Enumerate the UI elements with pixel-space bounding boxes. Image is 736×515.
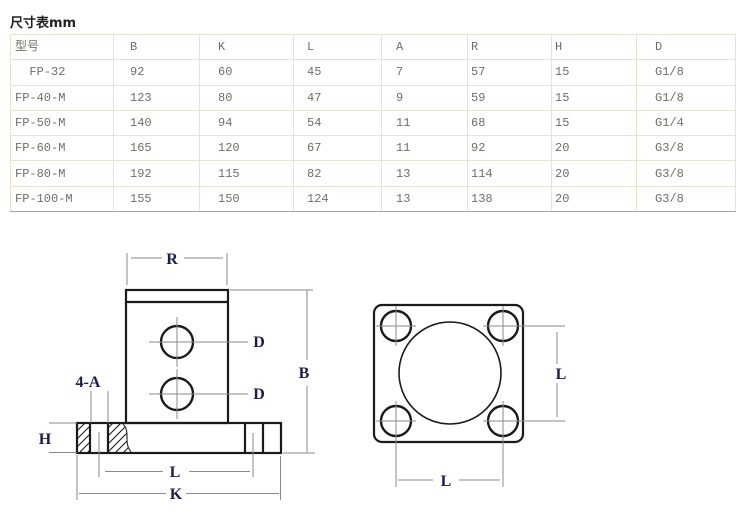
port-hole-bottom: D bbox=[149, 369, 265, 419]
dim-l-vertical: L bbox=[556, 332, 567, 417]
front-view-drawing: R D D bbox=[39, 251, 315, 503]
technical-drawings: R D D bbox=[0, 0, 736, 515]
top-view-drawing: L L bbox=[374, 305, 566, 490]
dim-l-front: L bbox=[99, 432, 253, 481]
label-l-horizontal: L bbox=[441, 473, 452, 490]
port-hole-top: D bbox=[149, 317, 265, 367]
bolt-hole-bottom-left bbox=[376, 401, 416, 487]
dim-b: B bbox=[230, 290, 315, 453]
bore-circle bbox=[399, 322, 501, 424]
label-d-top: D bbox=[253, 334, 265, 351]
label-d-bottom: D bbox=[253, 386, 265, 403]
dim-4a: 4-A bbox=[76, 374, 108, 423]
dim-h: H bbox=[39, 423, 77, 453]
label-l-vertical: L bbox=[556, 366, 567, 383]
label-b: B bbox=[299, 365, 310, 382]
dim-r: R bbox=[127, 251, 227, 285]
label-r: R bbox=[166, 251, 178, 268]
label-h: H bbox=[39, 431, 52, 448]
label-k: K bbox=[170, 486, 183, 503]
page: 尺寸表mm 型号BKLARHD FP-3292604575715G1/8FP-4… bbox=[0, 0, 736, 515]
bolt-hole-top-left bbox=[376, 306, 416, 346]
dim-l-horizontal: L bbox=[398, 473, 500, 490]
label-l-front: L bbox=[170, 464, 181, 481]
label-4a: 4-A bbox=[76, 374, 101, 391]
